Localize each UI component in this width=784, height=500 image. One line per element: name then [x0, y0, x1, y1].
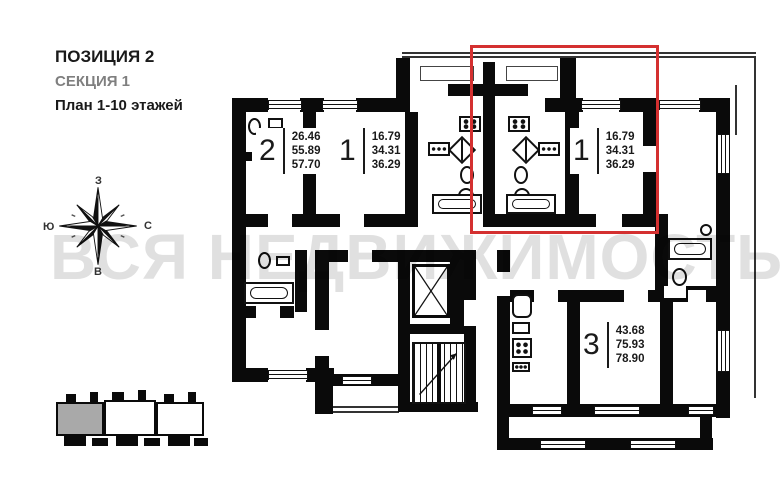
door-gap: [464, 300, 476, 326]
window: [268, 370, 308, 380]
compass-star-icon: [52, 180, 144, 272]
sink-icon: [276, 256, 290, 266]
site-bump: [164, 394, 174, 402]
wall: [315, 368, 333, 414]
stairs: [412, 342, 466, 404]
bathtub-icon: [668, 238, 712, 260]
apartment-number: 2: [259, 134, 276, 168]
door-gap: [688, 290, 706, 302]
apartment-number: 1: [339, 134, 356, 168]
toilet-icon: [258, 252, 271, 269]
apartment-label-3: 3 43.68 75.93 78.90: [580, 322, 647, 368]
door-gap: [534, 290, 558, 302]
site-bump: [66, 394, 76, 402]
window: [659, 100, 701, 110]
door-gap: [624, 290, 648, 302]
site-porch: [194, 438, 208, 446]
wall: [660, 290, 673, 406]
elevator-x-icon: [415, 267, 447, 315]
apartment-areas: 43.68 75.93 78.90: [616, 324, 645, 366]
door-gap: [256, 306, 280, 318]
door-gap: [497, 272, 510, 296]
wall: [232, 98, 268, 112]
label-divider: [363, 128, 365, 174]
window: [532, 406, 562, 415]
window: [268, 100, 302, 110]
apartment-label-1-left: 1 16.79 34.31 36.29: [336, 128, 403, 174]
wall: [450, 250, 464, 324]
door-gap: [268, 214, 292, 227]
toilet-icon: [672, 268, 687, 286]
wall: [300, 98, 324, 112]
label-divider: [607, 322, 609, 368]
counter-icon: [512, 322, 530, 334]
site-bump: [188, 392, 196, 402]
balcony-rail: [735, 85, 737, 135]
wall: [295, 250, 307, 312]
site-porch: [144, 438, 160, 446]
door-gap: [664, 286, 686, 298]
wall: [396, 58, 410, 112]
balcony-door: [420, 66, 474, 81]
sink-icon: [512, 294, 532, 318]
window: [688, 406, 714, 415]
wall: [232, 214, 418, 227]
site-porch: [64, 436, 86, 446]
compass-label-north: С: [144, 220, 152, 232]
door-gap: [348, 250, 372, 262]
position-title: ПОЗИЦИЯ 2: [55, 48, 183, 65]
wall: [567, 290, 580, 406]
floors-title: План 1-10 этажей: [55, 98, 183, 113]
site-porch: [92, 438, 108, 446]
site-porch: [168, 436, 190, 446]
sink-icon: [700, 224, 712, 236]
window: [322, 100, 358, 110]
wall: [232, 368, 268, 382]
label-divider: [283, 128, 285, 174]
window: [717, 134, 729, 174]
wall: [405, 112, 418, 214]
site-section: [104, 400, 156, 436]
balcony-rail: [754, 58, 756, 398]
apartment-number: 3: [583, 328, 600, 362]
section-title: СЕКЦИЯ 1: [55, 74, 183, 89]
site-plan: [50, 388, 225, 463]
counter-icon: [428, 142, 450, 156]
site-bump: [90, 392, 98, 402]
compass-rose-icon: З С Ю В: [52, 180, 144, 272]
balcony-rail: [333, 406, 399, 408]
door-gap: [340, 214, 364, 227]
site-bump: [112, 392, 124, 400]
floor-plan-page: ПОЗИЦИЯ 2 СЕКЦИЯ 1 План 1-10 этажей: [0, 0, 784, 500]
counter-icon: [512, 362, 530, 372]
site-section: [156, 402, 204, 436]
apartment-label-2: 2 26.46 55.89 57.70: [256, 128, 323, 174]
compass-label-west: З: [95, 175, 102, 187]
window: [540, 440, 586, 448]
window: [630, 440, 676, 448]
wall: [398, 324, 464, 334]
apartment-areas: 16.79 34.31 36.29: [372, 130, 401, 172]
stove-icon: [512, 338, 532, 358]
balcony-rail: [333, 411, 399, 413]
wall: [497, 438, 713, 450]
window: [342, 376, 372, 385]
site-bump: [138, 390, 146, 400]
highlighted-apartment-box: [470, 45, 659, 234]
apartment-areas: 26.46 55.89 57.70: [292, 130, 321, 172]
site-section-highlighted: [56, 402, 104, 436]
header: ПОЗИЦИЯ 2 СЕКЦИЯ 1 План 1-10 этажей: [55, 48, 183, 113]
wall: [232, 98, 246, 382]
window: [717, 330, 729, 372]
stairs-arrow-icon: [414, 344, 464, 402]
compass-label-south: Ю: [43, 221, 54, 233]
site-porch: [116, 436, 138, 446]
door-gap: [315, 330, 329, 356]
window: [594, 406, 640, 415]
compass-label-east: В: [94, 266, 102, 278]
bathtub-icon: [244, 282, 294, 304]
elevator: [412, 264, 450, 318]
